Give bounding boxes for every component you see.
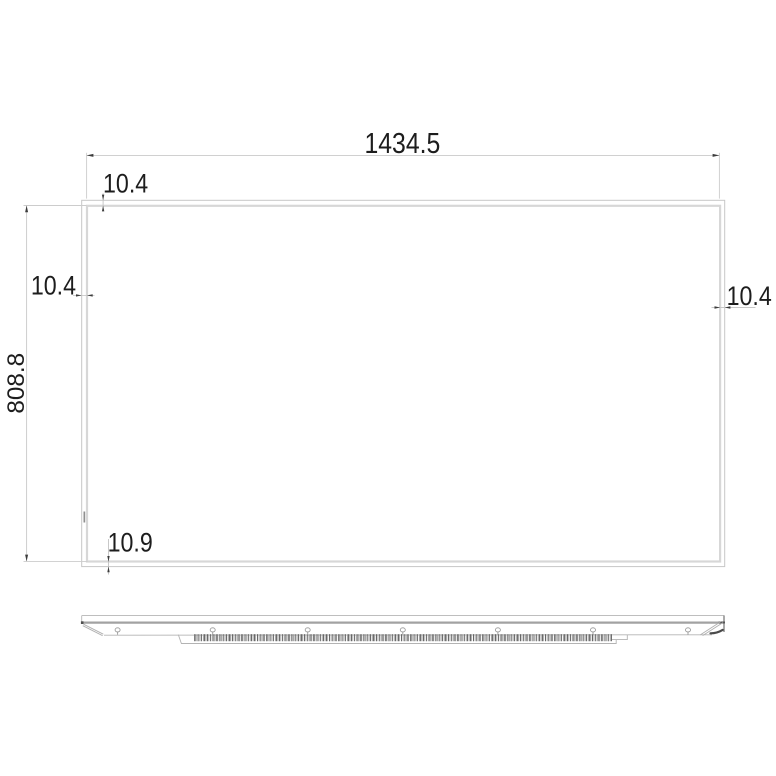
svg-text:1434.5: 1434.5: [364, 127, 440, 159]
svg-text:10.4: 10.4: [727, 281, 772, 311]
svg-text:10.4: 10.4: [31, 271, 76, 301]
svg-text:808.8: 808.8: [3, 353, 30, 414]
svg-text:10.4: 10.4: [103, 169, 148, 199]
svg-text:10.9: 10.9: [108, 528, 153, 558]
